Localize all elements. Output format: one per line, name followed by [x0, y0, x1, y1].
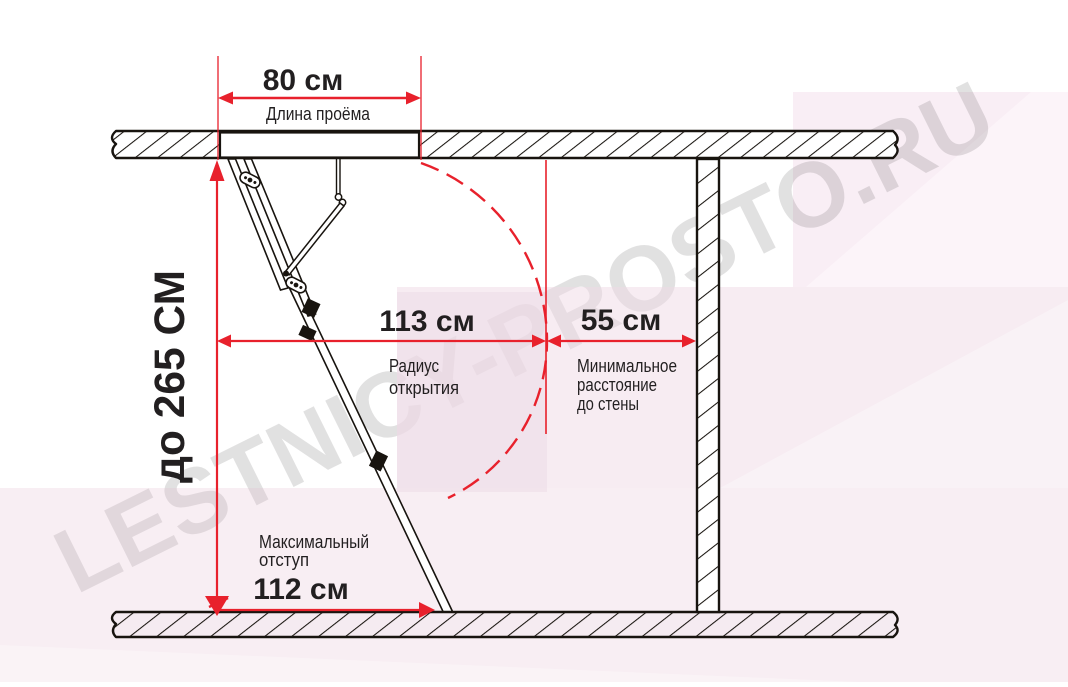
svg-text:расстояние: расстояние [577, 374, 657, 395]
svg-text:112 см: 112 см [253, 573, 349, 606]
svg-text:до 265 СМ: до 265 СМ [147, 270, 194, 483]
svg-text:80 см: 80 см [263, 64, 344, 97]
svg-text:Длина проёма: Длина проёма [266, 103, 371, 124]
svg-text:Радиус: Радиус [389, 355, 439, 376]
svg-text:открытия: открытия [389, 377, 459, 398]
svg-text:до стены: до стены [577, 393, 639, 414]
svg-text:55 см: 55 см [581, 304, 662, 337]
svg-text:Минимальное: Минимальное [577, 355, 677, 376]
svg-text:113 см: 113 см [379, 305, 475, 338]
svg-text:отступ: отступ [259, 549, 309, 570]
